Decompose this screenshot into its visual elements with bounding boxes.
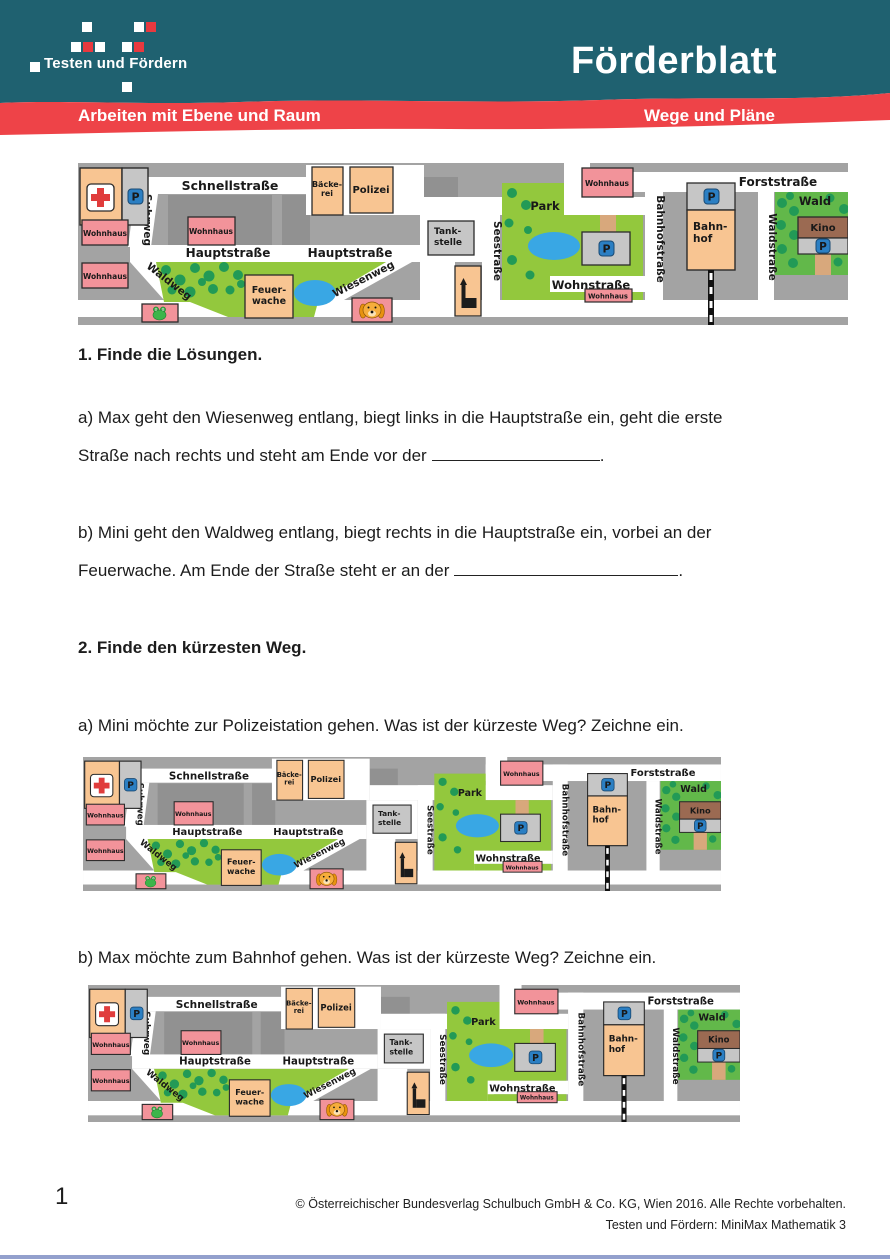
- park-pond: [528, 232, 580, 260]
- exercise2b-text: b) Max möchte zum Bahnhof gehen. Was ist…: [78, 947, 656, 968]
- answer-blank-1a: [432, 446, 600, 461]
- town-map-2: Park Wald Schnellstraße Suhrweg Hauptstr…: [83, 757, 721, 891]
- cinema-building: Kino P: [680, 802, 721, 833]
- exercise1b-period: .: [678, 561, 683, 580]
- wohnhaus-label: Wohnhaus: [506, 865, 540, 871]
- fire-station-label-2: wache: [227, 867, 255, 876]
- frog-house: [142, 1104, 172, 1119]
- parking-letter: P: [707, 191, 715, 204]
- fire-station-label-2: wache: [252, 296, 286, 307]
- dog-icon: [360, 302, 385, 318]
- logo-square: [122, 42, 132, 52]
- dog-icon: [326, 1103, 347, 1117]
- cinema-label: Kino: [810, 223, 835, 234]
- logo-square: [134, 42, 144, 52]
- park-path: [516, 800, 529, 814]
- logo-square: [134, 22, 144, 32]
- park-label: Park: [471, 1017, 496, 1028]
- gas-station-label-2: stelle: [389, 1047, 413, 1056]
- fire-station-label-2: wache: [235, 1097, 264, 1106]
- wohnhaus-label: Wohnhaus: [585, 179, 630, 188]
- exercise2a-text: a) Mini möchte zur Polizeistation gehen.…: [78, 715, 684, 736]
- west-pond: [262, 854, 297, 876]
- map-bottom-edge: [88, 1115, 740, 1122]
- wohnhaus-label: Wohnhaus: [83, 229, 128, 238]
- forststrasse-label: Forststraße: [648, 996, 714, 1007]
- wohnhaus-label: Wohnhaus: [87, 848, 124, 855]
- logo-text: Testen und Fördern: [44, 55, 187, 72]
- park-path: [530, 1029, 544, 1043]
- wald-label: Wald: [698, 1013, 725, 1024]
- schnellstrasse-label: Schnellstraße: [182, 178, 279, 193]
- cinema-label: Kino: [690, 805, 711, 815]
- frog-house: [136, 874, 166, 889]
- logo-square: [30, 62, 40, 72]
- cinema-building: Kino P: [798, 217, 848, 254]
- church-building: [395, 842, 417, 883]
- fire-station-label-1: Feuer-: [252, 285, 286, 296]
- hospital-parking-block: P: [85, 761, 141, 808]
- wohnhaus-label: Wohnhaus: [87, 812, 124, 819]
- gas-station-building: Tank- stelle: [428, 221, 474, 255]
- cinema-building: Kino P: [698, 1031, 740, 1062]
- wohnhaus-label: Wohnhaus: [520, 1096, 554, 1102]
- town-map: Park Wald Schnellstraße Suhrweg Hauptstr…: [88, 985, 740, 1122]
- gas-station-building: Tank- stelle: [373, 805, 411, 833]
- dog-house: [352, 298, 392, 322]
- waldstrasse-label: Waldstraße: [670, 1028, 680, 1085]
- town-map: Park Wald Schnellstraße Suhrweg Hauptstr…: [78, 163, 848, 325]
- bahnhofstrasse-label: Bahnhofstraße: [575, 1012, 585, 1086]
- west-pond: [271, 1084, 307, 1106]
- bakery-building: Bäcke- rei: [312, 167, 343, 215]
- cinema-label: Kino: [708, 1035, 729, 1045]
- exercise1b-line1: b) Mini geht den Waldweg entlang, biegt …: [78, 522, 711, 543]
- parking-letter: P: [819, 241, 827, 253]
- exercise1-heading: 1. Finde die Lösungen.: [78, 344, 262, 365]
- exercise1a-line1: a) Max geht den Wiesenweg entlang, biegt…: [78, 407, 722, 428]
- park-pond: [456, 814, 499, 837]
- logo-square: [71, 42, 81, 52]
- seestrasse-label: Seestraße: [425, 805, 435, 855]
- gas-station-building: Tank- stelle: [384, 1034, 423, 1063]
- fire-station-label-1: Feuer-: [227, 858, 255, 867]
- church-building: [455, 266, 481, 316]
- bakery-label-2: rei: [321, 189, 333, 198]
- dog-house: [310, 869, 343, 889]
- bakery-label-1: Bäcke-: [312, 180, 342, 189]
- church-building: [407, 1072, 429, 1114]
- parking-letter: P: [518, 824, 525, 834]
- exercise1a-period: .: [600, 446, 605, 465]
- parking-letter: P: [621, 1009, 628, 1020]
- hospital-parking-block: P: [90, 989, 148, 1037]
- footer-copyright: © Österreichischer Bundesverlag Schulbuc…: [296, 1194, 846, 1215]
- schnellstrasse-label: Schnellstraße: [176, 999, 258, 1011]
- map-bottom-edge: [78, 317, 848, 325]
- hauptstrasse-label-east: Hauptstraße: [308, 246, 393, 260]
- gas-station-label-1: Tank-: [378, 809, 400, 818]
- fire-station-building: Feuer- wache: [229, 1080, 270, 1116]
- parking-letter: P: [605, 781, 612, 791]
- police-building: Polizei: [308, 760, 344, 798]
- wohnhaus-label: Wohnhaus: [92, 1078, 129, 1085]
- bahnhofstrasse-label: Bahnhofstraße: [560, 784, 570, 857]
- parking-letter: P: [602, 243, 610, 256]
- map-bottom-edge: [83, 885, 721, 892]
- town-map: Park Wald Schnellstraße Suhrweg Hauptstr…: [83, 757, 721, 891]
- wald-label: Wald: [680, 784, 707, 795]
- parking-letter: P: [697, 822, 704, 832]
- parking-letter: P: [716, 1052, 723, 1062]
- park-pond: [469, 1043, 513, 1067]
- window-bottom-edge: [0, 1255, 890, 1259]
- bahnhofstrasse-label: Bahnhofstraße: [654, 195, 666, 283]
- answer-blank-1b: [454, 561, 678, 576]
- seestrasse-label: Seestraße: [437, 1034, 447, 1085]
- logo-square: [83, 42, 93, 52]
- banner-topic-right: Wege und Pläne: [644, 106, 775, 126]
- wohnhaus-label: Wohnhaus: [83, 272, 128, 281]
- fire-station-building: Feuer- wache: [221, 850, 261, 886]
- forest-path: [815, 254, 831, 275]
- hauptstrasse-label-west: Hauptstraße: [172, 827, 242, 838]
- train-station-label-1: Bahn-: [609, 1035, 638, 1045]
- train-station-label-2: hof: [609, 1045, 625, 1055]
- police-building: Polizei: [318, 988, 354, 1027]
- park-label: Park: [458, 788, 483, 799]
- bakery-building: Bäcke- rei: [277, 760, 303, 800]
- west-pond: [294, 280, 336, 306]
- fire-station-building: Feuer- wache: [245, 275, 293, 318]
- train-station-label-1: Bahn-: [693, 221, 727, 233]
- waldstrasse-label: Waldstraße: [766, 213, 778, 281]
- banner-topic-left: Arbeiten mit Ebene und Raum: [78, 106, 321, 126]
- exercise1a-line2-text: Straße nach rechts und steht am Ende vor…: [78, 446, 427, 465]
- gas-station-label-2: stelle: [378, 818, 401, 827]
- exercise1b-line2-text: Feuerwache. Am Ende der Straße steht er …: [78, 561, 449, 580]
- park-parking-building: P: [501, 814, 541, 841]
- gas-station-label-1: Tank-: [434, 227, 461, 237]
- fire-station-label-1: Feuer-: [235, 1088, 264, 1097]
- exercise1b-line2: Feuerwache. Am Ende der Straße steht er …: [78, 560, 683, 581]
- schnellstrasse-label: Schnellstraße: [169, 770, 249, 782]
- town-map-3: Park Wald Schnellstraße Suhrweg Hauptstr…: [88, 985, 740, 1122]
- train-station-label-2: hof: [593, 815, 609, 825]
- waldstrasse-label: Waldstraße: [653, 799, 663, 855]
- wohnhaus-label: Wohnhaus: [175, 811, 212, 818]
- bakery-label-2: rei: [294, 1007, 304, 1015]
- exercise2-heading: 2. Finde den kürzesten Weg.: [78, 637, 306, 658]
- town-map-1: Park Wald Schnellstraße Suhrweg Hauptstr…: [78, 163, 848, 325]
- parking-letter: P: [131, 191, 139, 204]
- wohnhaus-label: Wohnhaus: [588, 293, 628, 301]
- forest-path: [712, 1062, 726, 1080]
- police-building: Polizei: [350, 167, 393, 213]
- seestrasse-label: Seestraße: [491, 221, 503, 281]
- footer: © Österreichischer Bundesverlag Schulbuc…: [296, 1194, 846, 1236]
- hauptstrasse-label-east: Hauptstraße: [282, 1057, 354, 1068]
- logo-square: [122, 82, 132, 92]
- bakery-label-2: rei: [284, 778, 294, 786]
- dog-house: [320, 1099, 354, 1119]
- wohnhaus-label: Wohnhaus: [182, 1040, 219, 1047]
- gas-station-label-1: Tank-: [389, 1038, 412, 1047]
- footer-series: Testen und Fördern: MiniMax Mathematik 3: [296, 1215, 846, 1236]
- logo-square: [95, 42, 105, 52]
- parking-letter: P: [532, 1053, 539, 1064]
- parking-letter: P: [133, 1009, 140, 1020]
- bakery-building: Bäcke- rei: [286, 988, 312, 1029]
- forest-path: [694, 832, 707, 849]
- gas-station-label-2: stelle: [434, 238, 462, 248]
- wohnhaus-label: Wohnhaus: [92, 1042, 129, 1049]
- logo-square: [146, 22, 156, 32]
- logo-square: [82, 22, 92, 32]
- wohnhaus-label: Wohnhaus: [517, 999, 554, 1006]
- wohnhaus-label: Wohnhaus: [503, 771, 540, 778]
- forststrasse-label: Forststraße: [631, 768, 696, 779]
- train-station-label-2: hof: [693, 233, 713, 245]
- park-parking-building: P: [582, 232, 630, 265]
- park-parking-building: P: [515, 1043, 556, 1071]
- hospital-parking-block: P: [80, 168, 148, 225]
- frog-house: [142, 304, 178, 322]
- exercise1a-line2: Straße nach rechts und steht am Ende vor…: [78, 445, 604, 466]
- parking-letter: P: [127, 781, 134, 791]
- dog-icon: [316, 872, 337, 885]
- police-label: Polizei: [352, 185, 389, 196]
- page-number: 1: [55, 1183, 68, 1211]
- park-path: [600, 215, 616, 232]
- hauptstrasse-label-west: Hauptstraße: [186, 246, 271, 260]
- wald-label: Wald: [799, 194, 831, 208]
- train-station-label-1: Bahn-: [593, 806, 622, 816]
- forststrasse-label: Forststraße: [739, 175, 817, 189]
- page-title: Förderblatt: [571, 40, 777, 83]
- police-label: Polizei: [320, 1002, 351, 1012]
- police-label: Polizei: [310, 774, 341, 784]
- hauptstrasse-label-east: Hauptstraße: [273, 827, 343, 838]
- park-label: Park: [530, 199, 560, 213]
- wohnhaus-label: Wohnhaus: [189, 227, 234, 236]
- hauptstrasse-label-west: Hauptstraße: [179, 1057, 251, 1068]
- worksheet-page: Testen und Fördern Förderblatt Arbeiten …: [0, 0, 890, 1259]
